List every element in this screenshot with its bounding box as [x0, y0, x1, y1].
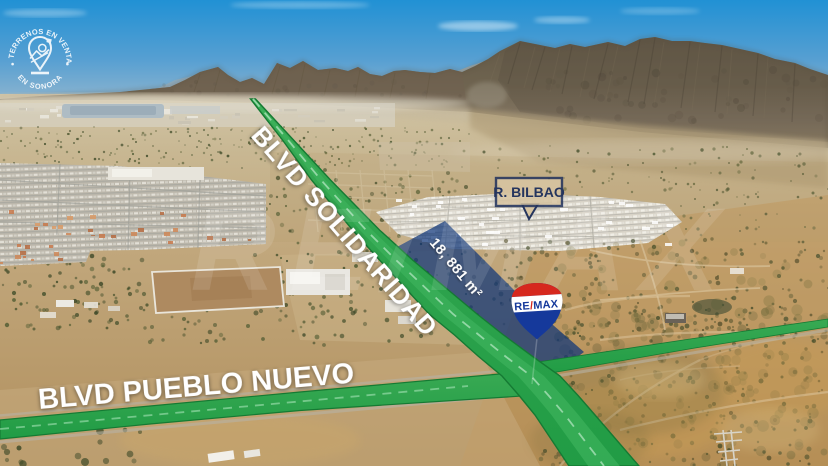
svg-text:RE/MAX: RE/MAX: [191, 184, 734, 316]
svg-text:R. BILBAO: R. BILBAO: [493, 184, 565, 200]
